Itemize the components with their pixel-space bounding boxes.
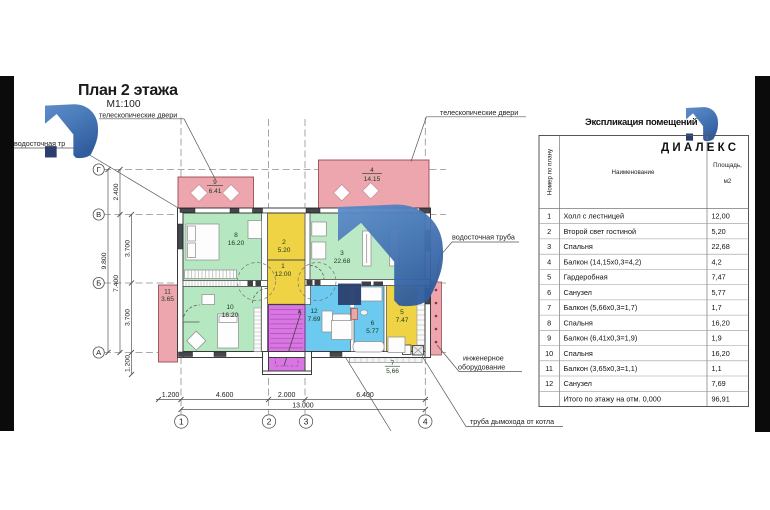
svg-text:Спальня: Спальня [564, 242, 593, 251]
svg-text:12.00: 12.00 [275, 271, 292, 278]
svg-text:Балкон (6,41х0,3=1,9): Балкон (6,41х0,3=1,9) [564, 334, 638, 343]
svg-text:Номер по плану: Номер по плану [547, 148, 554, 195]
svg-text:5,20: 5,20 [712, 227, 726, 236]
svg-text:14.15: 14.15 [364, 176, 381, 183]
svg-text:7.69: 7.69 [308, 316, 321, 323]
svg-text:22.68: 22.68 [334, 258, 351, 265]
svg-text:6: 6 [371, 320, 375, 327]
svg-text:5: 5 [547, 273, 551, 282]
svg-text:8: 8 [234, 232, 238, 239]
svg-text:1: 1 [281, 263, 285, 270]
svg-text:13.000: 13.000 [292, 403, 314, 410]
svg-text:1,7: 1,7 [712, 303, 722, 312]
svg-text:96,91: 96,91 [712, 395, 730, 404]
svg-text:2: 2 [547, 227, 551, 236]
svg-text:Санузел: Санузел [564, 379, 592, 388]
svg-text:инженерное: инженерное [463, 354, 504, 363]
svg-text:2: 2 [267, 417, 272, 427]
svg-text:5,77: 5,77 [712, 288, 726, 297]
svg-text:5.20: 5.20 [278, 247, 291, 254]
svg-text:9: 9 [547, 334, 551, 343]
svg-text:10: 10 [545, 349, 553, 358]
svg-text:10: 10 [226, 304, 234, 311]
svg-text:План 2 этажа: План 2 этажа [78, 82, 178, 99]
svg-text:9.800: 9.800 [101, 252, 108, 269]
svg-text:6.400: 6.400 [356, 392, 374, 399]
svg-text:3.700: 3.700 [125, 309, 132, 326]
svg-text:7: 7 [391, 360, 395, 367]
svg-text:М1:100: М1:100 [107, 99, 141, 110]
svg-text:7: 7 [547, 303, 551, 312]
svg-text:3: 3 [340, 250, 344, 257]
svg-text:1,9: 1,9 [712, 334, 722, 343]
svg-text:12: 12 [310, 308, 318, 315]
svg-text:1: 1 [179, 417, 184, 427]
svg-text:2: 2 [282, 239, 286, 246]
svg-text:3.65: 3.65 [161, 296, 174, 303]
svg-text:7.400: 7.400 [113, 275, 120, 292]
svg-text:7,47: 7,47 [712, 273, 726, 282]
svg-text:5: 5 [400, 309, 404, 316]
svg-text:3.700: 3.700 [125, 240, 132, 257]
svg-text:16,20: 16,20 [712, 349, 730, 358]
svg-text:1.200: 1.200 [162, 392, 180, 399]
svg-text:5,66: 5,66 [386, 368, 399, 375]
svg-text:2.000: 2.000 [278, 392, 296, 399]
svg-text:Санузел: Санузел [564, 288, 592, 297]
svg-text:6.41: 6.41 [209, 188, 222, 195]
svg-text:8: 8 [547, 318, 551, 327]
svg-text:3: 3 [304, 417, 309, 427]
svg-text:Холл с лестницей: Холл с лестницей [564, 212, 625, 221]
svg-text:12,00: 12,00 [712, 212, 730, 221]
svg-text:Площадь,: Площадь, [713, 162, 742, 169]
svg-text:1.200: 1.200 [125, 355, 132, 372]
svg-text:труба дымохода от котла: труба дымохода от котла [470, 417, 554, 426]
svg-text:11: 11 [164, 289, 171, 296]
svg-text:Экспликация помещений: Экспликация помещений [585, 117, 698, 128]
svg-text:2.400: 2.400 [113, 183, 120, 200]
svg-text:9: 9 [213, 179, 217, 186]
svg-text:7,69: 7,69 [712, 379, 726, 388]
svg-text:Итого по этажу на отм. 0,000: Итого по этажу на отм. 0,000 [564, 395, 661, 404]
svg-text:4,2: 4,2 [712, 257, 722, 266]
svg-text:Наименование: Наименование [612, 169, 655, 176]
svg-text:оборудование: оборудование [458, 363, 505, 372]
svg-text:Гардеробная: Гардеробная [564, 273, 608, 282]
svg-text:1,1: 1,1 [712, 364, 722, 373]
svg-text:1: 1 [547, 212, 551, 221]
svg-text:4.600: 4.600 [216, 392, 234, 399]
svg-text:12: 12 [545, 379, 553, 388]
svg-text:Спальня: Спальня [564, 318, 593, 327]
svg-text:5.77: 5.77 [366, 328, 379, 335]
svg-text:м2: м2 [724, 178, 732, 185]
svg-text:16.20: 16.20 [228, 240, 245, 247]
svg-text:Второй свет гостиной: Второй свет гостиной [564, 227, 637, 236]
svg-text:4: 4 [547, 257, 551, 266]
svg-text:3: 3 [547, 242, 551, 251]
svg-text:Б: Б [96, 279, 101, 288]
svg-text:телескопические двери: телескопические двери [440, 108, 518, 117]
svg-text:22,68: 22,68 [712, 242, 730, 251]
svg-text:16,20: 16,20 [712, 318, 730, 327]
svg-text:16.20: 16.20 [222, 312, 239, 319]
svg-text:Балкон (14,15х0,3=4,2): Балкон (14,15х0,3=4,2) [564, 257, 642, 266]
svg-text:водосточная труба: водосточная труба [452, 233, 515, 242]
svg-text:телескопические двери: телескопические двери [99, 111, 177, 120]
svg-text:6: 6 [547, 288, 551, 297]
svg-text:Балкон (5,66х0,3=1,7): Балкон (5,66х0,3=1,7) [564, 303, 638, 312]
svg-text:4: 4 [423, 417, 428, 427]
svg-text:водосточная тр: водосточная тр [14, 139, 65, 148]
svg-text:ДИАЛЕКС: ДИАЛЕКС [661, 142, 739, 154]
svg-text:В: В [96, 210, 101, 219]
svg-text:4: 4 [370, 167, 374, 174]
svg-text:Г: Г [97, 165, 101, 174]
svg-text:7.47: 7.47 [396, 317, 409, 324]
svg-text:Спальня: Спальня [564, 349, 593, 358]
svg-text:Балкон (3,65х0,3=1,1): Балкон (3,65х0,3=1,1) [564, 364, 638, 373]
svg-text:11: 11 [545, 364, 553, 373]
